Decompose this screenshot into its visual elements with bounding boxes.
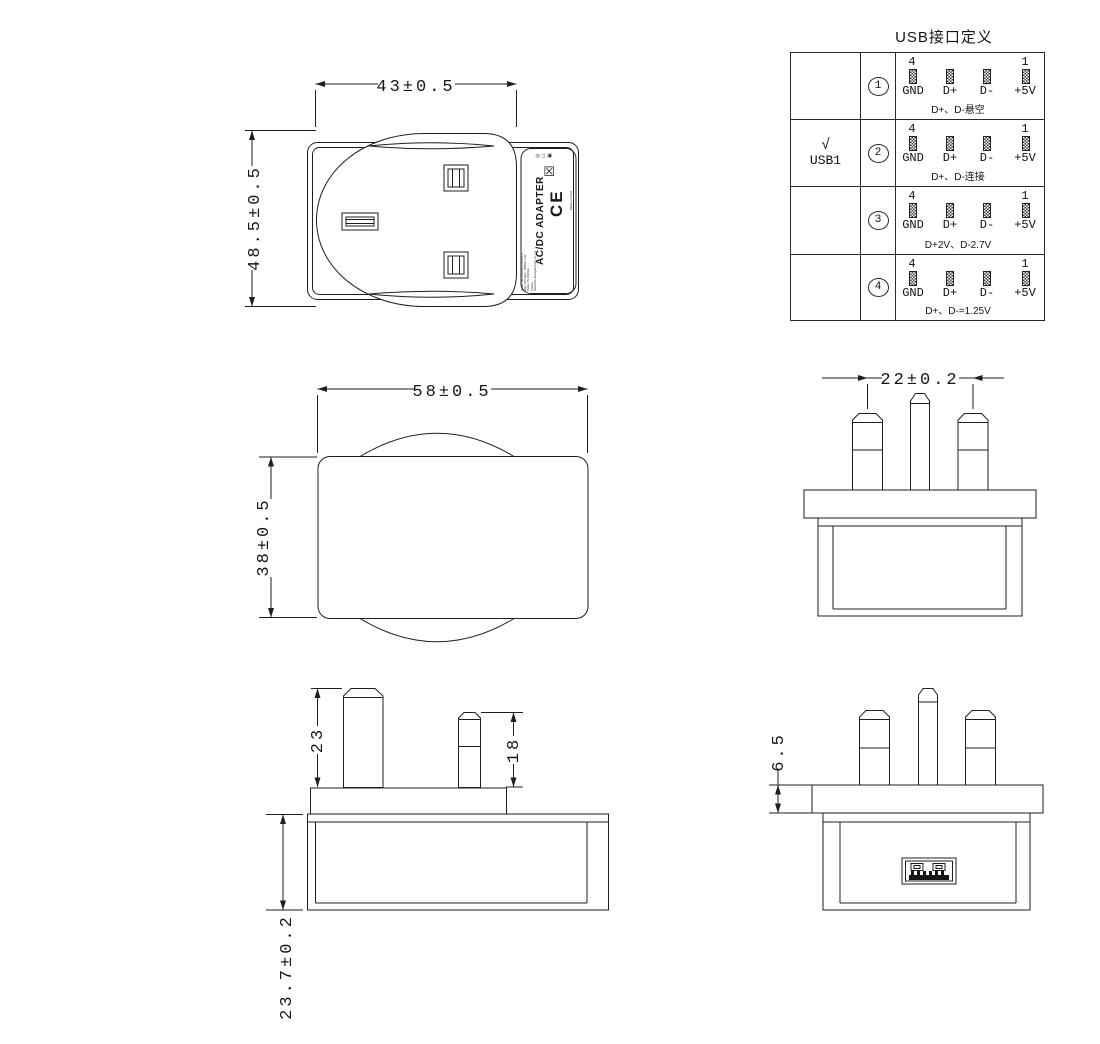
pin-connector-icon <box>1022 136 1030 151</box>
port-cell-row3 <box>791 186 860 254</box>
pin-connector-icon <box>983 136 991 151</box>
pin-diagram-cell-row1: 4 1 GND D+ D- +5V D+、D-悬空 <box>895 53 1044 119</box>
circled-number: 4 <box>868 278 889 297</box>
flange-thickness-dimension: 6.5 <box>769 732 812 813</box>
label-title: AC/DC ADAPTER <box>535 176 546 265</box>
pin-diagram-cell-row3: 4 1 GND D+ D- +5V D+2V、D-2.7V <box>895 186 1044 254</box>
product-label: Model: JB9-0501000-XXXXXX-A Input: 100-2… <box>520 148 576 294</box>
side-view: 58±0.5 38±0.5 <box>255 382 588 642</box>
top-view: 22±0.2 <box>804 368 1036 616</box>
top-view-flange <box>804 490 1036 518</box>
index-cell-row3: 3 <box>860 186 895 254</box>
pin-label-dplus: D+ <box>932 151 968 165</box>
pin-connector-icon <box>983 203 991 218</box>
side-body-outline <box>318 457 588 619</box>
pin-diagram-cell-row4: 4 1 GND D+ D- +5V D+、D-=1.25V <box>895 254 1044 320</box>
pin-number-1: 1 <box>1008 189 1042 203</box>
pin-label-5v: +5V <box>1007 286 1043 300</box>
pin-label-5v: +5V <box>1007 84 1043 98</box>
pin-connector-icon <box>946 203 954 218</box>
usb-port <box>902 858 956 884</box>
body-depth-dimension: 23.7±0.2 <box>266 815 303 1020</box>
front-height-dim-text: 48.5±0.5 <box>246 165 265 271</box>
pin-label-5v: +5V <box>1007 218 1043 232</box>
pin-connector-icon <box>983 69 991 84</box>
check-mark: √ <box>821 138 829 152</box>
index-cell-row4: 4 <box>860 254 895 320</box>
pin-connector-icon <box>1022 69 1030 84</box>
pin-note: D+、D-=1.25V <box>896 302 1020 317</box>
front-height-dimension: 48.5±0.5 <box>244 131 316 307</box>
pin-spacing-dimension: 22±0.2 <box>822 368 1004 409</box>
circled-number: 1 <box>868 77 889 96</box>
port-cell-row4 <box>791 254 860 320</box>
pin-note: D+、D-悬空 <box>896 101 1020 116</box>
pin-note: D+2V、D-2.7V <box>896 236 1020 251</box>
top-view-body <box>818 518 1022 616</box>
side-face-arc-top <box>360 433 514 456</box>
weee-bin-icon: ☒ <box>543 165 556 177</box>
pin-connector-icon <box>1022 203 1030 218</box>
pin-profile-view: 23 18 23.7±0.2 <box>266 689 609 1020</box>
bottom-view-flange <box>812 785 1043 813</box>
pin-connector-icon <box>909 69 917 84</box>
pin-spacing-dim-text: 22±0.2 <box>880 371 959 390</box>
pin-label-gnd: GND <box>895 151 931 165</box>
usb-definition-table: 1 4 1 GND D+ D- +5V D+、D-悬空 √ USB1 2 4 1 <box>790 52 1045 321</box>
technical-drawing-sheet: 43±0.5 48.5±0.5 58±0.5 <box>0 0 1100 1044</box>
pin-label-gnd: GND <box>895 286 931 300</box>
front-width-dimension: 43±0.5 <box>316 77 517 127</box>
pin-label-dplus: D+ <box>932 84 968 98</box>
power-pin-dim-text: 18 <box>505 737 524 763</box>
pin-number-4: 4 <box>901 257 923 271</box>
pin-number-1: 1 <box>1008 55 1042 69</box>
pin-connector-icon <box>909 271 917 286</box>
circled-number: 3 <box>868 211 889 230</box>
pin-label-dminus: D- <box>969 151 1005 165</box>
pin-connector-icon <box>946 69 954 84</box>
pin-connector-icon <box>983 271 991 286</box>
bottom-view-pins <box>860 689 996 786</box>
ce-mark: CE <box>547 189 567 217</box>
body-depth-dim-text: 23.7±0.2 <box>278 914 297 1020</box>
pin-label-dminus: D- <box>969 286 1005 300</box>
product-label-content: Model: JB9-0501000-XXXXXX-A Input: 100-2… <box>520 148 576 294</box>
pin-connector-icon <box>1022 271 1030 286</box>
pin-number-4: 4 <box>901 55 923 69</box>
made-in-text: Made in China <box>569 191 573 210</box>
side-height-dimension: 38±0.5 <box>255 457 317 618</box>
profile-platform <box>311 788 507 814</box>
top-view-pins <box>853 394 989 491</box>
side-width-dimension: 58±0.5 <box>318 382 588 453</box>
pin-label-5v: +5V <box>1007 151 1043 165</box>
profile-power-pin <box>459 713 481 788</box>
earth-pin-dim-text: 23 <box>309 727 328 753</box>
side-width-dim-text: 58±0.5 <box>412 383 491 402</box>
index-cell-row1: 1 <box>860 53 895 119</box>
front-width-dim-text: 43±0.5 <box>376 78 455 97</box>
pin-number-1: 1 <box>1008 257 1042 271</box>
pin-diagram-cell-row2: 4 1 GND D+ D- +5V D+、D-连接 <box>895 119 1044 186</box>
side-face-arc-bottom <box>360 619 514 642</box>
certification-icons: ◎ ▭ ▣ <box>536 153 553 158</box>
pin-label-dminus: D- <box>969 84 1005 98</box>
pin-connector-icon <box>946 271 954 286</box>
pin-connector-icon <box>946 136 954 151</box>
pin-number-4: 4 <box>901 189 923 203</box>
pin-label-gnd: GND <box>895 218 931 232</box>
pin-number-4: 4 <box>901 122 923 136</box>
pin-note: D+、D-连接 <box>896 168 1020 183</box>
side-height-dim-text: 38±0.5 <box>255 497 274 576</box>
pin-label-dminus: D- <box>969 218 1005 232</box>
cert-box-icon: ▣ <box>548 153 553 158</box>
port-name: USB1 <box>810 153 841 168</box>
port-cell-row2: √ USB1 <box>791 119 860 186</box>
pin-label-dplus: D+ <box>932 218 968 232</box>
pin-label-gnd: GND <box>895 84 931 98</box>
circled-number: 2 <box>868 144 889 163</box>
pin-connector-icon <box>909 136 917 151</box>
index-cell-row2: 2 <box>860 119 895 186</box>
bottom-view: 6.5 <box>769 689 1043 911</box>
earth-pin-dimension: 23 <box>307 689 342 788</box>
pin-label-dplus: D+ <box>932 286 968 300</box>
port-cell-row1 <box>791 53 860 119</box>
flange-thickness-dim-text: 6.5 <box>770 732 789 772</box>
profile-body <box>308 814 609 910</box>
usb-table-title: USB接口定义 <box>819 26 1069 47</box>
pin-number-1: 1 <box>1008 122 1042 136</box>
power-pin-dimension: 18 <box>481 713 524 788</box>
pin-connector-icon <box>909 203 917 218</box>
profile-earth-pin <box>344 689 384 788</box>
